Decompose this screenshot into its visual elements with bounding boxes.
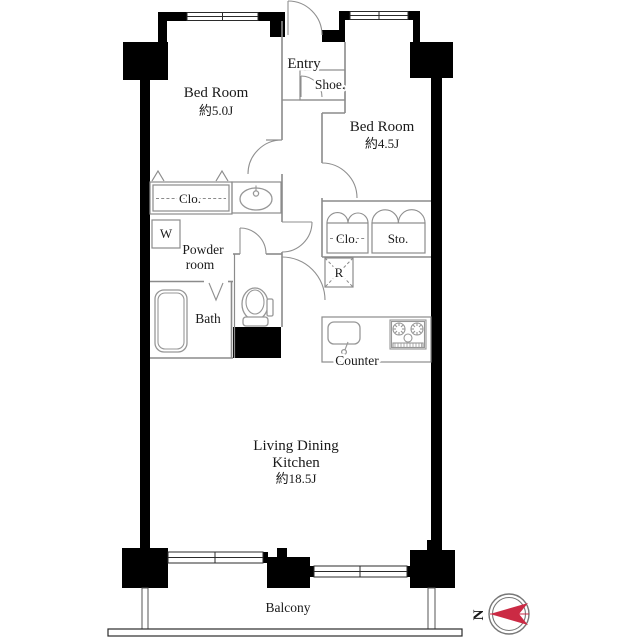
ldk-area: 約18.5J (276, 471, 317, 486)
wall-stub-right-pillar (427, 540, 438, 551)
entry-door (288, 1, 322, 35)
counter-label: Counter (335, 353, 379, 368)
powder-room-door (240, 228, 266, 254)
storage-label: Sto. (388, 231, 409, 246)
wall-stub-center-pillar (277, 548, 287, 558)
kitchen-sink (328, 322, 360, 354)
compass-north-label: N (471, 609, 487, 620)
toilet (242, 288, 273, 326)
washing-machine-label: W (160, 226, 173, 241)
window-bedroom5 (187, 13, 258, 21)
bedroom5-door (248, 140, 282, 174)
pillar-bottom-center (267, 557, 310, 588)
wall-conn-right-window-l (310, 566, 314, 577)
pillar-bottom-right (410, 550, 455, 588)
shoe-cabinet-label: Shoe. (315, 77, 345, 92)
powder-room-label-1: Powder (182, 242, 224, 257)
bathtub (155, 290, 187, 352)
floor-plan-drawing: N Bed Room 約5.0J Bed Room 約4.5J Entry Sh… (0, 0, 640, 639)
closet-bedroom45-label: Clo. (336, 231, 358, 246)
wall-conn-left-window (263, 552, 268, 563)
refrigerator-label: R (335, 265, 344, 280)
pillar-top-right (410, 42, 453, 78)
balcony-post-left (142, 588, 148, 629)
grill-hatch (393, 343, 423, 348)
pillar-bottom-left (122, 548, 168, 588)
closet-bedroom5-label: Clo. (179, 191, 201, 206)
bedroom45-area: 約4.5J (365, 136, 399, 151)
ldk-door (282, 257, 325, 300)
wall-conn-right-window-r (407, 566, 411, 577)
bath-folding-door (209, 283, 223, 300)
closet45-bifold-doors (327, 210, 425, 223)
window-bedroom45 (350, 12, 408, 20)
fixtures (155, 182, 281, 352)
window-ldk-right (314, 566, 407, 577)
toilet-door (282, 222, 312, 252)
ldk-name-1: Living Dining (253, 438, 339, 454)
wall-right-upper-strip (413, 20, 420, 44)
bedroom45-door (322, 163, 357, 198)
powder-room-label-2: room (186, 257, 215, 272)
window-ldk-left (168, 552, 263, 563)
compass: N (471, 594, 529, 634)
service-shaft-block (233, 327, 281, 358)
floor-plan: N Bed Room 約5.0J Bed Room 約4.5J Entry Sh… (0, 0, 640, 639)
washbasin (232, 182, 281, 213)
wall-right-main (431, 76, 442, 550)
ldk-name-2: Kitchen (272, 455, 320, 471)
pillar-top-left (123, 42, 168, 80)
entry-label: Entry (287, 56, 321, 72)
wall-left-corner-strip (158, 12, 167, 43)
balcony-post-right (428, 588, 435, 629)
room-labels: Bed Room 約5.0J Bed Room 約4.5J Entry Shoe… (160, 56, 415, 615)
bedroom5-area: 約5.0J (199, 103, 233, 118)
balcony-railing (108, 629, 462, 636)
bedroom45-name: Bed Room (350, 119, 415, 135)
bedroom5-name: Bed Room (184, 85, 249, 101)
bath-label: Bath (195, 311, 221, 326)
balcony-label: Balcony (266, 600, 311, 615)
wall-left-main (140, 78, 150, 548)
stove-icon (390, 320, 426, 349)
